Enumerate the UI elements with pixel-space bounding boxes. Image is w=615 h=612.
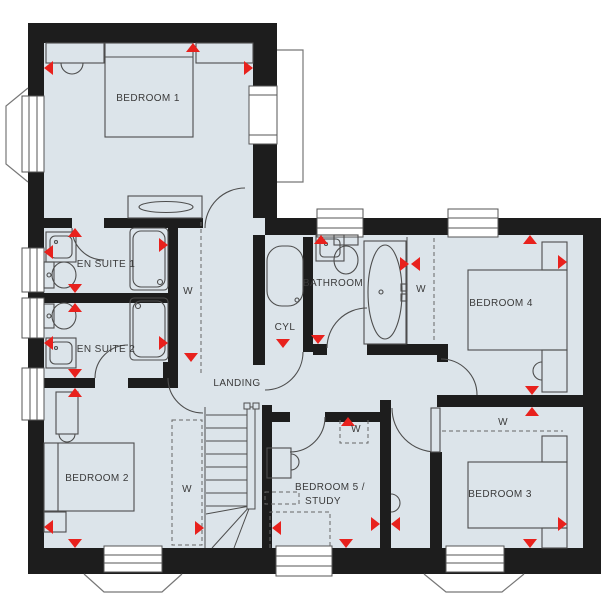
- wall-ensuite1-top: [104, 218, 203, 228]
- label-cylinder: CYL: [275, 322, 296, 333]
- label-bedroom4: BEDROOM 4: [469, 298, 533, 309]
- label-wardrobe-bedroom3: W: [498, 417, 508, 428]
- label-landing: LANDING: [213, 378, 260, 389]
- door-leaf-bedroom3: [431, 408, 440, 452]
- window-bedroom2-bay: [104, 546, 162, 572]
- window-bedroom3-bay: [446, 546, 504, 572]
- label-wardrobe-bedroom2: W: [182, 484, 192, 495]
- window-ensuite2: [22, 298, 44, 338]
- wall-shower-column: [168, 218, 178, 388]
- window-ensuite1: [22, 248, 44, 292]
- wall-bedroom5-top-right: [325, 412, 380, 422]
- wall-bedroom5-right: [380, 400, 391, 548]
- window-bay-bedroom1-left: [22, 96, 44, 172]
- wall-cyl-bathroom: [303, 237, 313, 352]
- stairs-newel-post: [244, 403, 250, 409]
- label-bedroom5-line1: BEDROOM 5 /: [295, 482, 365, 493]
- window-bedroom4: [448, 209, 498, 237]
- wall-ensuite2-bottom-left: [44, 378, 95, 388]
- wall-ensuite1-top-left: [44, 218, 72, 228]
- stairs-handrail: [247, 407, 255, 509]
- window-bedroom5: [276, 546, 332, 576]
- floor-plan-canvas: BEDROOM 1 EN SUITE 1 EN SUITE 2 W BATHRO…: [0, 0, 615, 612]
- label-ensuite2: EN SUITE 2: [77, 344, 135, 355]
- label-bedroom1: BEDROOM 1: [116, 93, 180, 104]
- label-ensuite1: EN SUITE 1: [77, 259, 135, 270]
- wall-bedroom4-bedroom3: [437, 395, 583, 407]
- label-bedroom5-line2: STUDY: [305, 496, 341, 507]
- window-bedroom2-left: [22, 368, 44, 420]
- label-bedroom3: BEDROOM 3: [468, 489, 532, 500]
- wall-ensuite2-bottom-right: [128, 378, 168, 388]
- window-bedroom1-right: [249, 86, 277, 144]
- bay-window-outline-bedroom2: [84, 574, 182, 592]
- roofline-outline: [277, 50, 303, 182]
- wall-corridor-bathroom: [253, 235, 265, 365]
- window-bathroom: [317, 209, 363, 237]
- label-bathroom: BATHROOM: [303, 278, 363, 289]
- label-bedroom2: BEDROOM 2: [65, 473, 129, 484]
- bay-window-outline-bedroom3: [424, 574, 524, 592]
- label-wardrobe-landing: W: [183, 286, 193, 297]
- label-wardrobe-bedroom5: W: [351, 424, 361, 435]
- label-wardrobe-bedroom4: W: [416, 284, 426, 295]
- wall-bedroom5-top-left: [272, 412, 290, 422]
- wall-bathroom-south-stub: [313, 344, 327, 355]
- wall-bedroom3-left: [430, 452, 442, 548]
- stairs-newel-post-2: [253, 403, 259, 409]
- floor-plan-drawing: BEDROOM 1 EN SUITE 1 EN SUITE 2 W BATHRO…: [0, 0, 615, 612]
- wall-under-bath: [367, 344, 442, 355]
